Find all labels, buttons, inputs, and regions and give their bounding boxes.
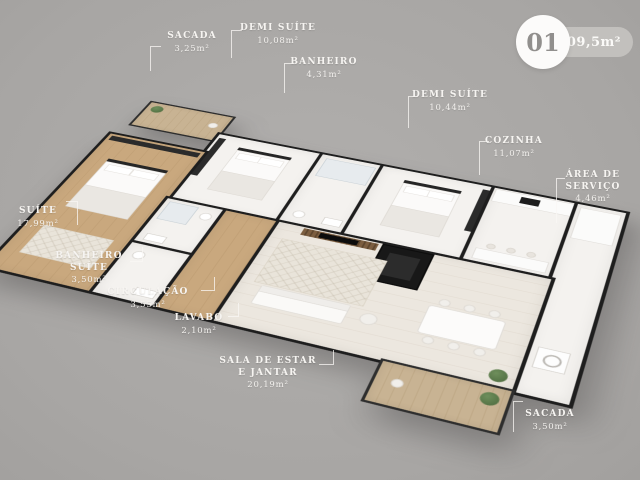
room-label-lavabo: LAVABO 2,10m²	[175, 313, 224, 337]
armchair	[357, 312, 380, 327]
room-label-sacada-bottom: SACADA 3,50m²	[525, 409, 575, 433]
room-label-sacada-top: SACADA 3,25m²	[167, 31, 217, 55]
sink	[142, 233, 167, 244]
washing-machine	[531, 346, 571, 374]
leader-banheiro-suite	[130, 247, 143, 262]
room-name: ÁREA DE SERVIÇO	[565, 170, 620, 192]
room-label-area-servico: ÁREA DE SERVIÇO 4,46m²	[560, 170, 626, 205]
laundry-counter	[570, 207, 622, 246]
leader-sala	[319, 350, 334, 365]
toilet	[291, 210, 307, 219]
room-label-banheiro: BANHEIRO 4,31m²	[290, 57, 357, 81]
shower	[156, 201, 199, 225]
cooktop	[519, 197, 541, 207]
leader-circulacao	[201, 277, 215, 291]
room-area: 3,50m²	[525, 422, 575, 433]
balcony-chair	[207, 122, 220, 128]
room-area: 3,55m²	[107, 300, 188, 311]
wardrobe	[108, 136, 200, 158]
dining-chair	[472, 347, 487, 357]
leader-sacada-top	[150, 46, 161, 71]
plant	[487, 368, 510, 384]
room-area: 10,08m²	[240, 36, 316, 47]
shower	[315, 158, 376, 185]
unit-number: 01	[526, 28, 559, 57]
room-label-suite: SUÍTE 17,99m²	[17, 206, 58, 230]
leader-sacada-bottom	[513, 401, 523, 432]
room-name: BANHEIRO	[290, 57, 357, 67]
fireplace-cap	[378, 253, 420, 281]
room-area: 2,10m²	[175, 326, 224, 337]
room-name: BANHEIRO SUÍTE	[55, 251, 122, 273]
room-name: SACADA	[525, 409, 575, 419]
room-name: CIRCULAÇÃO	[107, 287, 188, 297]
room-name: DEMI SUÍTE	[240, 23, 316, 33]
leader-suite	[66, 201, 78, 225]
room-area: 3,50m²	[50, 275, 128, 286]
room-area: 17,99m²	[17, 219, 58, 230]
room-label-banheiro-suite: BANHEIRO SUÍTE 3,50m²	[50, 251, 128, 286]
floor-plan-canvas: SACADA 3,25m² DEMI SUÍTE 10,08m² BANHEIR…	[0, 0, 640, 480]
plant	[478, 390, 502, 407]
bed	[207, 150, 290, 201]
room-area: 10,44m²	[412, 103, 488, 114]
room-name: DEMI SUÍTE	[412, 90, 488, 100]
room-label-cozinha: COZINHA 11,07m²	[485, 136, 543, 160]
balcony-chair	[389, 378, 405, 389]
unit-number-badge: 01	[516, 15, 570, 69]
plant	[149, 105, 166, 113]
room-area: 4,46m²	[560, 194, 626, 205]
room-label-demi-suite-1: DEMI SUÍTE 10,08m²	[240, 23, 316, 47]
blanket	[380, 205, 450, 238]
room-area: 3,25m²	[167, 44, 217, 55]
room-area: 4,31m²	[290, 70, 357, 81]
dining-chair	[420, 335, 435, 345]
room-area: 20,19m²	[215, 380, 321, 391]
room-label-demi-suite-2: DEMI SUÍTE 10,44m²	[412, 90, 488, 114]
room-area: 11,07m²	[485, 149, 543, 160]
toilet	[197, 212, 214, 221]
room-name: COZINHA	[485, 136, 543, 146]
bed	[380, 183, 461, 238]
room-label-sala: SALA DE ESTAR E JANTAR 20,19m²	[215, 356, 321, 391]
room-name: SALA DE ESTAR E JANTAR	[219, 356, 316, 378]
pillow	[257, 157, 285, 168]
sink	[321, 217, 344, 228]
room-label-circulacao: CIRCULAÇÃO 3,55m²	[107, 287, 188, 311]
leader-lavabo	[228, 303, 239, 317]
blanket	[207, 170, 276, 200]
room-name: LAVABO	[175, 313, 224, 323]
dining-chair	[446, 341, 461, 351]
room-name: SUÍTE	[19, 206, 57, 216]
bed	[65, 161, 166, 220]
room-name: SACADA	[167, 31, 217, 41]
